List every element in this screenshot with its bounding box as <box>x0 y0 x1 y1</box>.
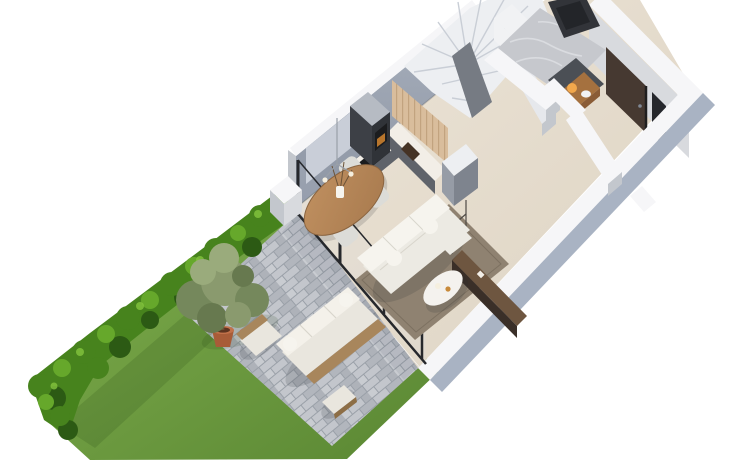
pendant-bulb <box>322 177 327 182</box>
warm-light-glow <box>567 83 577 93</box>
pendant-bulb <box>348 171 353 176</box>
door-handle <box>638 104 642 108</box>
wc-basin <box>581 90 591 97</box>
floor-plan-render <box>0 0 740 460</box>
floor-plan-svg <box>0 0 740 460</box>
outdoor-pillow <box>283 337 297 351</box>
sofa-pillow <box>422 218 438 234</box>
coffee-table-deco <box>435 283 441 289</box>
outdoor-pillow <box>339 293 353 307</box>
coffee-table-deco-orange <box>445 286 450 291</box>
sofa-pillow <box>386 250 402 266</box>
sofa-pillow <box>441 228 454 241</box>
vase <box>336 186 344 198</box>
